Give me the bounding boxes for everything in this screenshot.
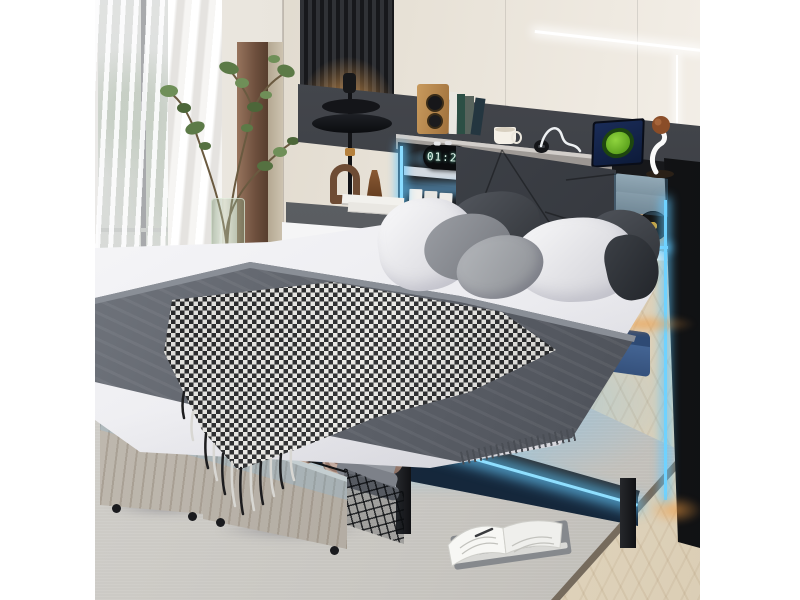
led-warm-glow-leg	[648, 496, 702, 524]
mug-handle	[511, 131, 522, 144]
coffee-mug	[494, 127, 516, 144]
lamp-brass-ring	[345, 148, 355, 156]
drawer-wheel-r1	[216, 518, 225, 527]
right-tower-column-led	[664, 200, 667, 500]
speaker-driver-large	[426, 94, 444, 112]
bed-leg-right	[620, 478, 636, 548]
wall-seam-1	[505, 0, 506, 120]
drawer-wheel-l1	[112, 504, 121, 513]
speaker-driver-small	[427, 113, 443, 129]
clock-button-1	[434, 141, 441, 145]
clock-button-2	[445, 141, 452, 145]
book-row-spine-2	[457, 94, 465, 134]
bedroom-product-photo: { "image": { "type": "product-photo", "s…	[0, 0, 800, 600]
charging-outlet	[534, 140, 549, 153]
drawer-wheel-r2	[330, 546, 339, 555]
tablet-logo-ring	[601, 127, 634, 159]
mug-rim	[495, 127, 515, 132]
lamp-disc-upper	[322, 99, 380, 114]
drawer-wheel-l2	[188, 512, 197, 521]
lamp-cap	[343, 73, 356, 93]
corner-shadow-panel	[268, 42, 283, 254]
tablet-logo-green-blob	[606, 131, 631, 155]
white-margin-right	[700, 0, 800, 600]
outlet-port	[538, 145, 545, 148]
wall-seam-2	[637, 0, 638, 135]
lamp-disc-lower	[312, 114, 392, 133]
white-margin-left	[0, 0, 95, 600]
tablet-screen	[593, 120, 642, 165]
tablet	[591, 118, 645, 168]
wooden-speaker	[417, 84, 449, 134]
